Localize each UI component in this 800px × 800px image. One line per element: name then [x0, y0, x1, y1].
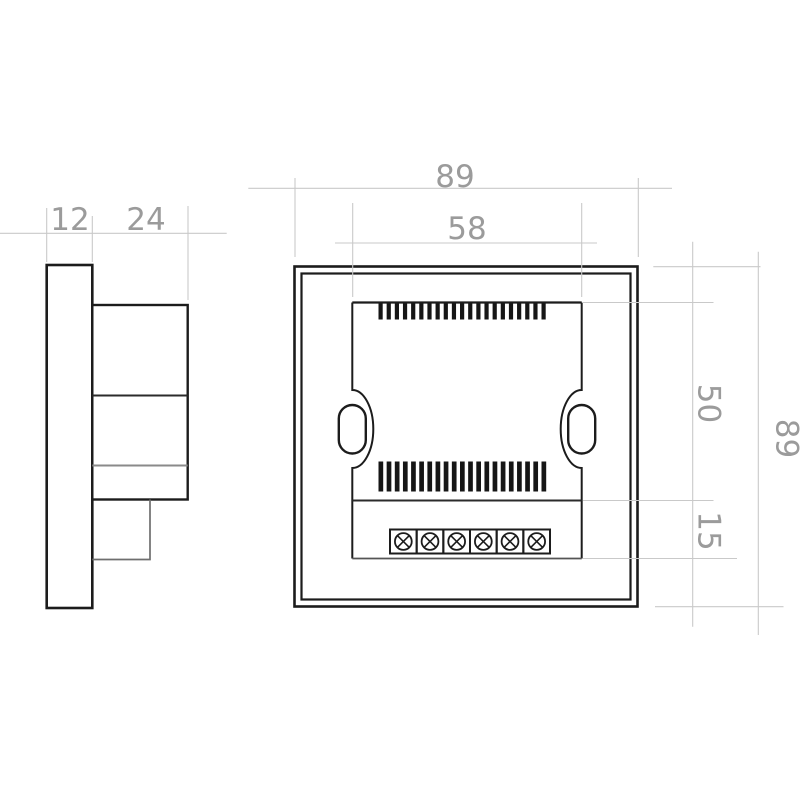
dim-label-12: 12 — [50, 202, 89, 238]
dim-label-89-right: 89 — [769, 419, 800, 458]
bottom-vent-slots — [379, 462, 547, 492]
dim-label-15: 15 — [691, 511, 727, 550]
side-body — [92, 305, 187, 500]
front-view — [295, 267, 638, 607]
technical-drawing: 12 24 89 58 50 15 89 — [0, 0, 800, 800]
side-terminal-step — [92, 500, 150, 560]
dim-label-58: 58 — [447, 211, 486, 247]
dim-label-50: 50 — [691, 384, 727, 423]
technical-drawing-canvas: 12 24 89 58 50 15 89 — [0, 0, 800, 800]
side-front-plate — [47, 265, 93, 608]
top-vent-slots — [379, 304, 546, 320]
mounting-hole-right — [568, 405, 595, 454]
dim-label-24: 24 — [126, 202, 165, 238]
terminal-block — [390, 530, 550, 554]
side-view — [47, 265, 188, 608]
mounting-hole-left — [339, 405, 366, 454]
dim-label-89-top: 89 — [435, 159, 474, 195]
